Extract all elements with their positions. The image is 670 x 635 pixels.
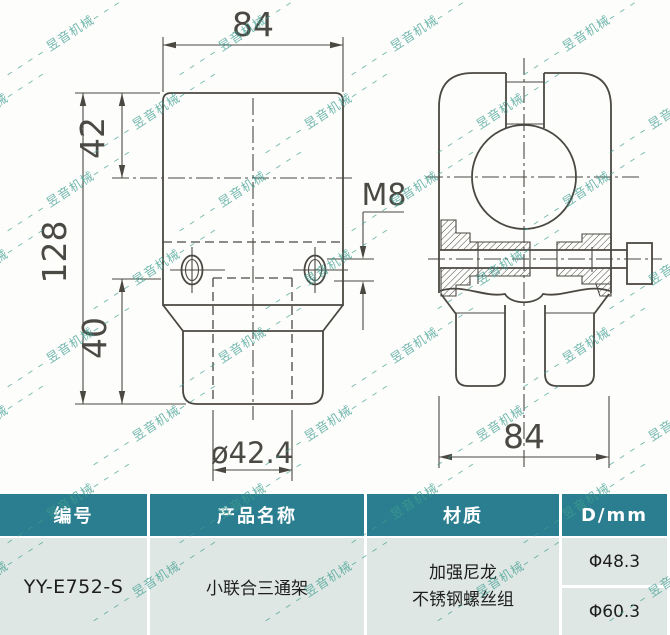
cell-diameter-2: Φ60.3 [562,588,667,635]
header-product-name: 产品名称 [150,494,364,536]
technical-drawing: 84 42 128 40 [0,0,670,492]
dim-label-40: 40 [75,317,114,359]
header-code: 编号 [0,494,147,536]
header-diameter: D/mm [562,494,667,536]
dim-label-bore: ø42.4 [211,436,293,470]
cell-diameter-1: Φ48.3 [562,538,667,585]
spec-table: 编号 产品名称 材质 D/mm YY-E752-S 小联合三通架 加强尼龙 不锈… [0,492,670,635]
dim-m8: M8 [327,178,406,330]
material-line-2: 不锈钢螺丝组 [412,587,514,613]
dim-label-84-top: 84 [232,5,274,44]
cell-product-name: 小联合三通架 [150,538,364,635]
product-drawing-sheet: 84 42 128 40 [0,0,670,635]
front-view: 84 42 128 40 [35,5,406,481]
dim-label-84-side: 84 [503,417,545,456]
dim-label-42: 42 [73,117,112,159]
dim-label-m8: M8 [362,178,407,213]
dim-label-128: 128 [35,221,74,284]
side-section-view: 84 [426,58,662,468]
cell-material: 加强尼龙 不锈钢螺丝组 [367,538,559,635]
cell-code: YY-E752-S [0,538,147,635]
header-material: 材质 [367,494,559,536]
bolt-nut [627,243,652,284]
cell-diameter-group: Φ48.3 Φ60.3 [562,538,667,635]
material-line-1: 加强尼龙 [429,560,497,586]
slot-hole-right [293,247,348,293]
dim-bore: ø42.4 [211,410,293,481]
dim-84-top: 84 [163,5,343,92]
slot-hole-left [170,247,225,293]
